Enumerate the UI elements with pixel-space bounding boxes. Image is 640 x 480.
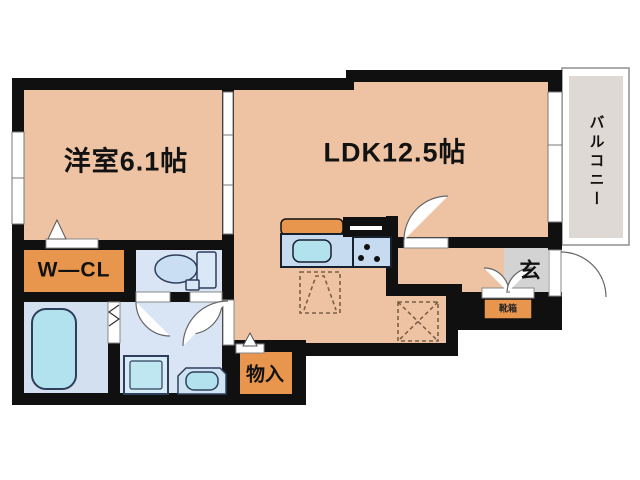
wall-right-mid <box>548 222 562 250</box>
wall-top-right <box>346 70 562 82</box>
kitchen-counter <box>281 217 397 267</box>
wall-yoshitsu-bottom <box>12 240 222 250</box>
washing-machine <box>124 356 168 394</box>
bathtub <box>32 309 76 389</box>
door-ldk-leaf <box>404 238 448 248</box>
ldk-floor-top-strip <box>354 82 548 92</box>
stove-burner-1 <box>364 244 370 250</box>
stove-top <box>353 237 391 267</box>
western-room-label: 洋室6.1帖 <box>64 149 189 176</box>
door-toilet-left-leaf <box>136 292 170 302</box>
floorplan-canvas: 洋室6.1帖 LDK12.5帖 バルコニー W―CL 玄 物入 靴箱 <box>0 0 640 480</box>
kitchen-counter-top <box>281 219 343 235</box>
door-washroom-leaf <box>223 300 234 345</box>
storage-label: 物入 <box>246 366 284 385</box>
door-toilet-right-leaf <box>190 292 222 302</box>
kitchen-sink <box>293 240 331 262</box>
vanity-sink <box>178 368 226 394</box>
window-balcony <box>548 92 562 222</box>
wall-top-left <box>12 78 354 90</box>
toilet-tank <box>197 252 216 288</box>
bath-folding-door <box>108 302 120 343</box>
balcony-label: バルコニー <box>589 115 604 210</box>
toilet-bowl <box>155 255 197 283</box>
door-entrance-leaf <box>549 250 561 296</box>
sliding-door-yoshitsu-ldk <box>223 92 233 234</box>
walk-in-closet-label: W―CL <box>38 260 111 281</box>
stove-burner-2 <box>358 255 364 261</box>
door-entrance-arc <box>561 252 606 297</box>
ldk-label: LDK12.5帖 <box>323 140 466 167</box>
floorplan-drawing <box>0 0 640 480</box>
shoe-cabinet-label: 靴箱 <box>499 305 517 314</box>
toilet-flush <box>186 280 199 290</box>
wall-bath-washroom-divider <box>108 340 120 393</box>
stove-hood-vent <box>350 226 382 230</box>
entrance-label: 玄 <box>520 261 541 282</box>
wall-right-upper <box>548 70 562 92</box>
wall-right-lower <box>548 294 562 330</box>
stove-burner-3 <box>374 256 380 262</box>
